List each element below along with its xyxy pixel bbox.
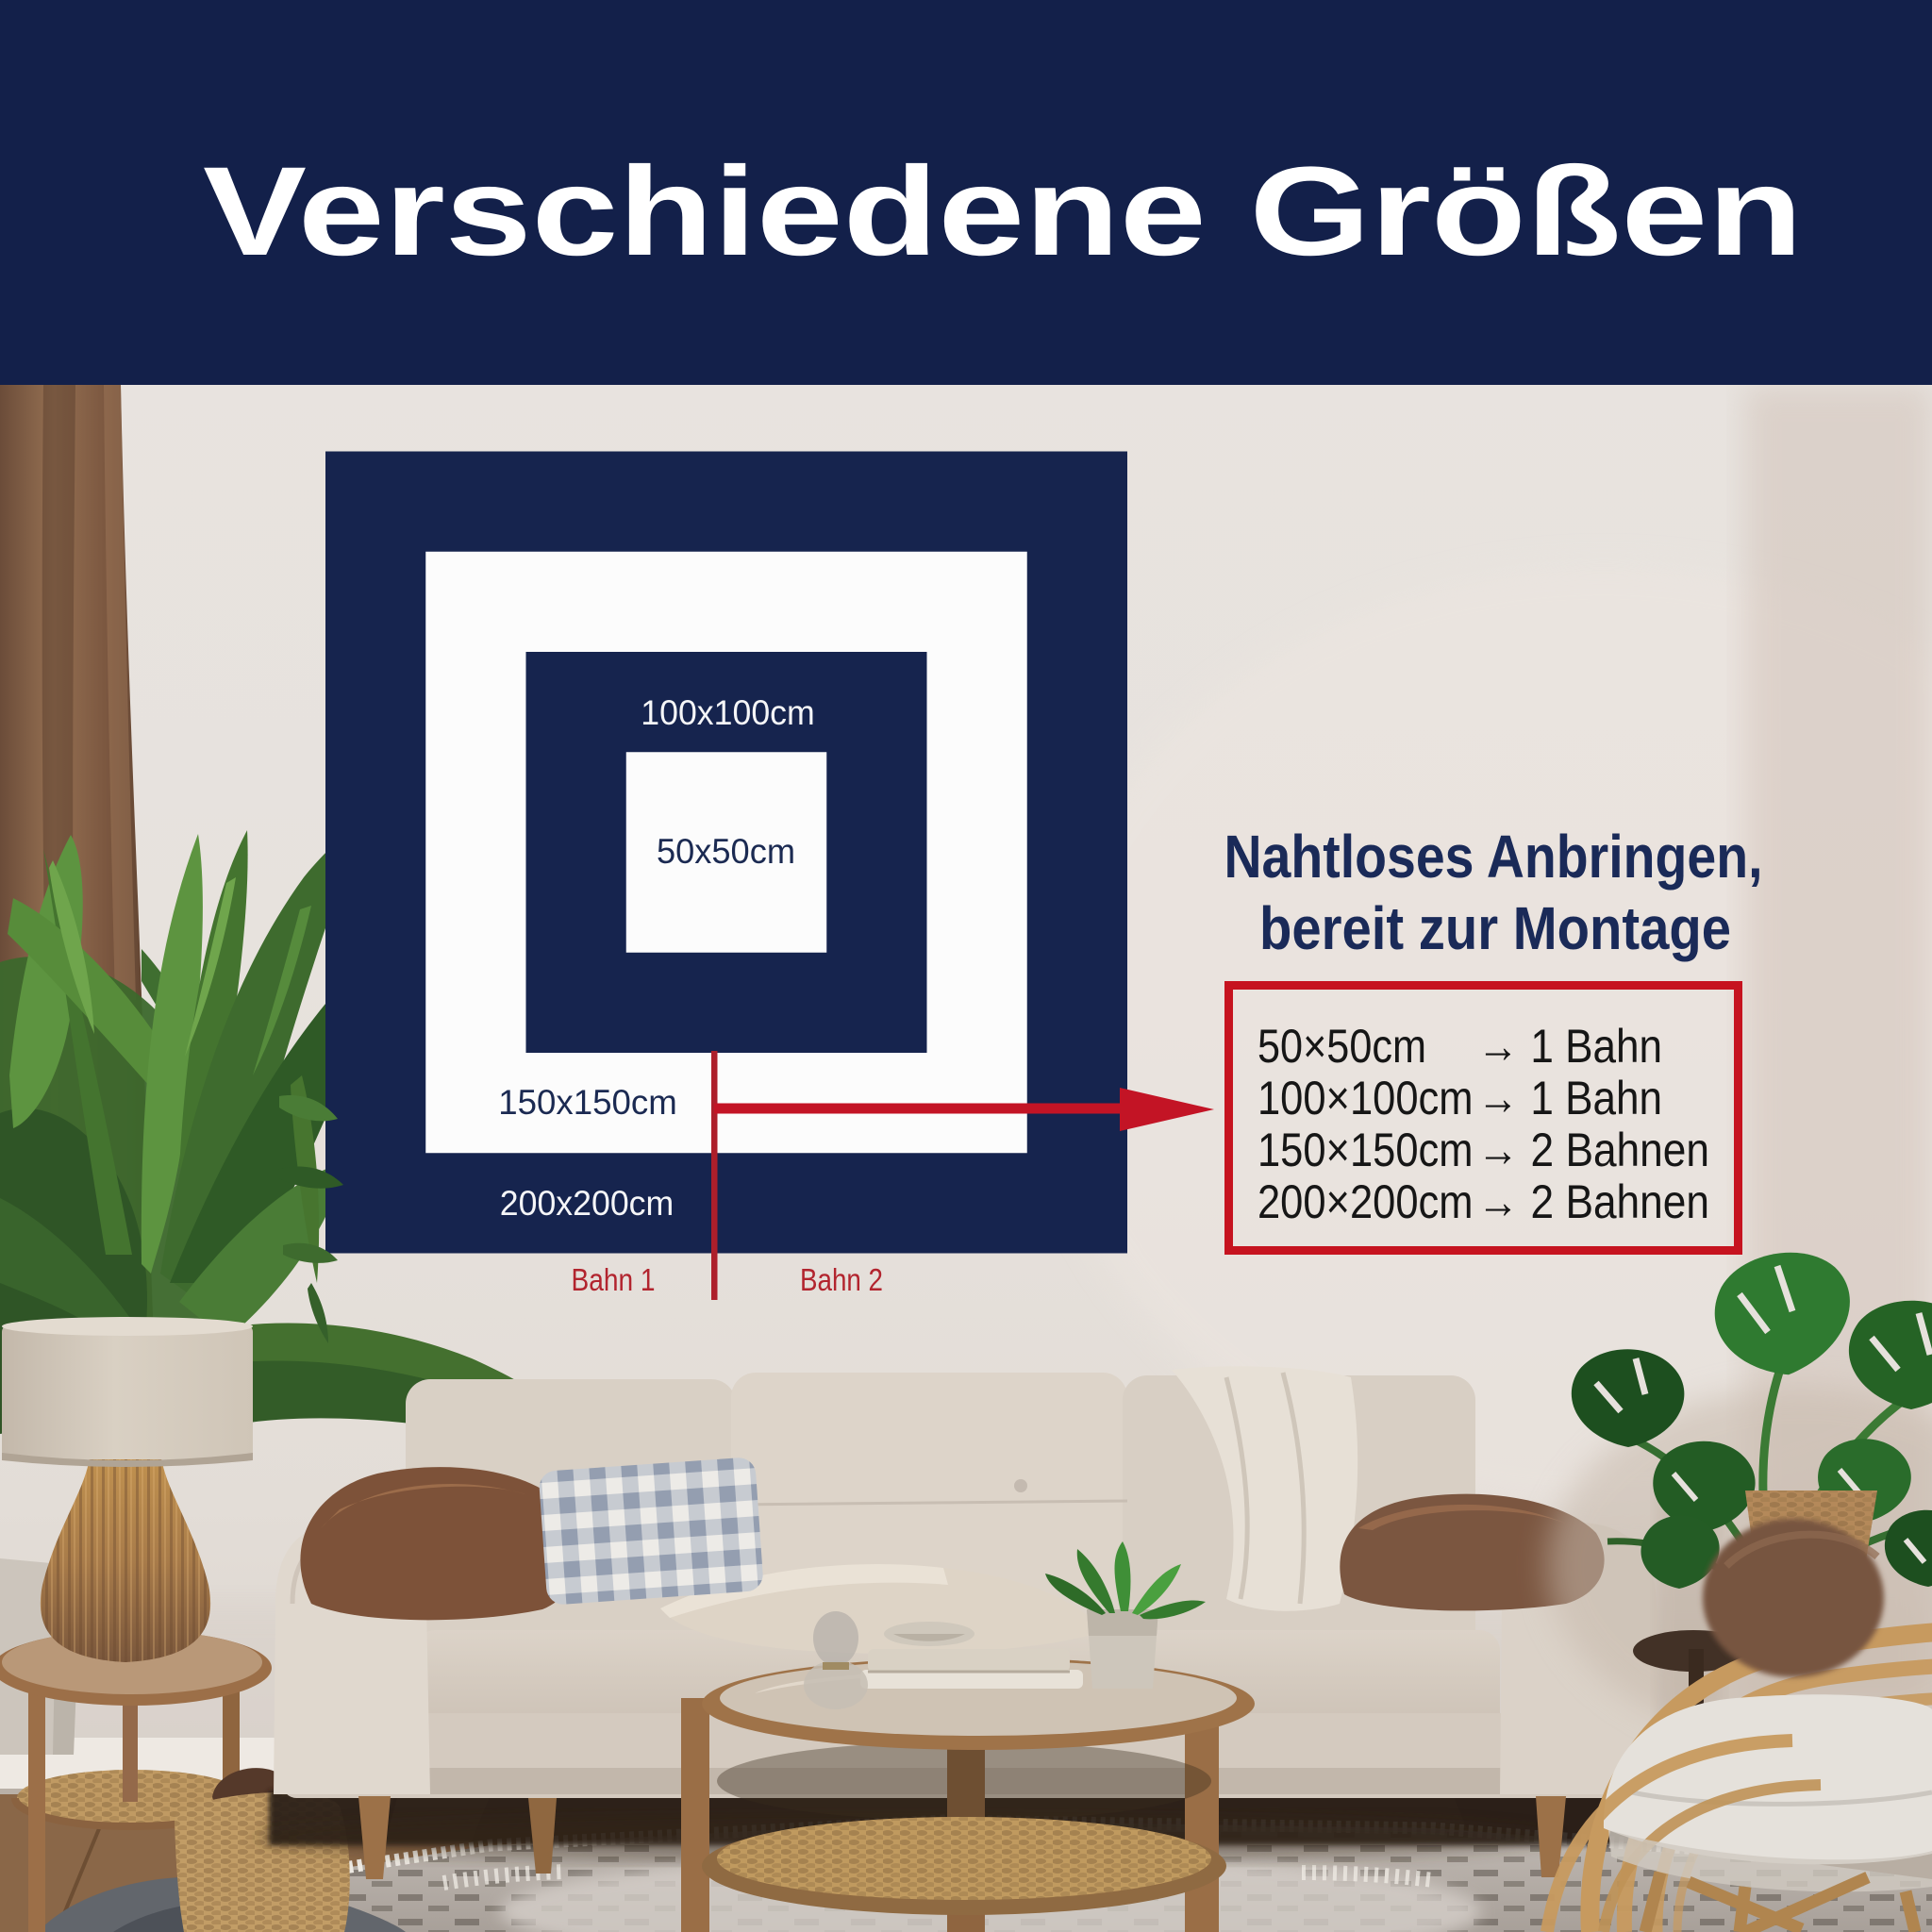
svg-text:100×100cm: 100×100cm bbox=[1257, 1072, 1474, 1124]
svg-text:50×50cm: 50×50cm bbox=[1257, 1020, 1426, 1073]
svg-text:Bahn 2: Bahn 2 bbox=[800, 1262, 883, 1297]
svg-text:200×200cm: 200×200cm bbox=[1257, 1175, 1474, 1228]
svg-text:→ 1 Bahn: → 1 Bahn bbox=[1477, 1072, 1662, 1124]
svg-text:Verschiedene Größen: Verschiedene Größen bbox=[203, 142, 1803, 282]
svg-text:→ 2 Bahnen: → 2 Bahnen bbox=[1477, 1175, 1709, 1228]
svg-text:150x150cm: 150x150cm bbox=[498, 1083, 677, 1122]
svg-text:Bahn 1: Bahn 1 bbox=[572, 1262, 656, 1297]
svg-text:bereit zur Montage: bereit zur Montage bbox=[1259, 894, 1731, 962]
svg-text:150×150cm: 150×150cm bbox=[1257, 1124, 1474, 1176]
svg-text:→ 2 Bahnen: → 2 Bahnen bbox=[1477, 1124, 1709, 1176]
svg-text:Nahtloses Anbringen,: Nahtloses Anbringen, bbox=[1224, 823, 1763, 891]
svg-text:→ 1 Bahn: → 1 Bahn bbox=[1477, 1020, 1662, 1073]
svg-text:100x100cm: 100x100cm bbox=[641, 693, 815, 732]
svg-text:50x50cm: 50x50cm bbox=[657, 832, 795, 871]
svg-text:200x200cm: 200x200cm bbox=[500, 1184, 675, 1223]
